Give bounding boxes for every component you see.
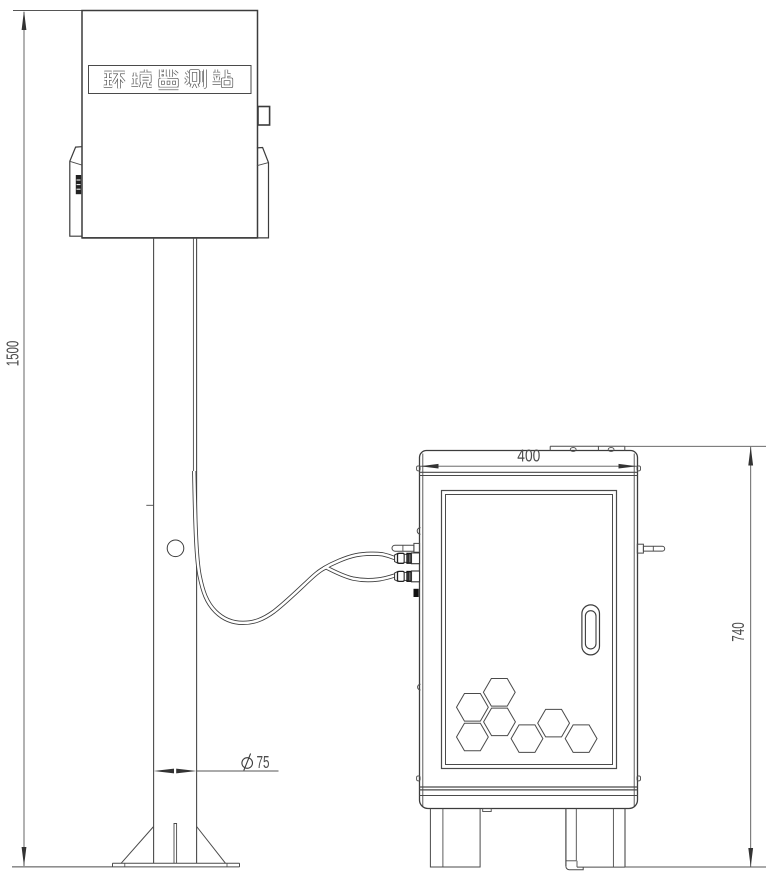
- svg-text:740: 740: [728, 622, 748, 642]
- svg-text:75: 75: [257, 752, 270, 772]
- svg-text:1500: 1500: [3, 341, 23, 367]
- svg-text:400: 400: [517, 446, 540, 466]
